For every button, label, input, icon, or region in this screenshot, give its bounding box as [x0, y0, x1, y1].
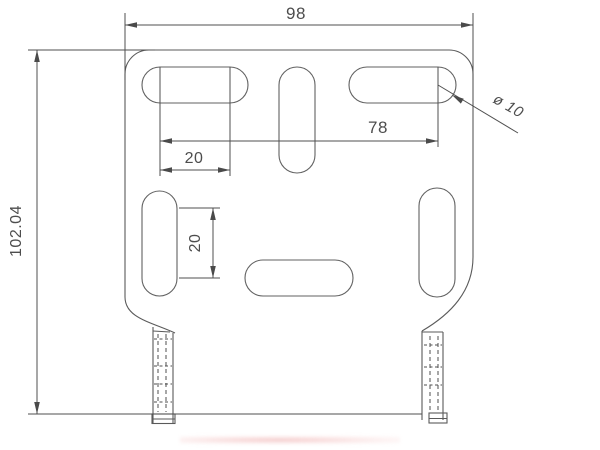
- dim-sideslot-label: 20: [187, 234, 204, 253]
- dim-topslot-arrow-right: [218, 167, 230, 173]
- leg-right: [422, 331, 447, 423]
- leg-left: [152, 327, 175, 424]
- dim-height-arrow-bottom: [34, 402, 40, 414]
- plate-outline: [125, 50, 473, 333]
- dim-sideslot-arrow-top: [210, 208, 216, 220]
- dim-overall-height: 102.04: [8, 50, 422, 414]
- slot-top-right: [349, 67, 456, 103]
- slot-top-left: [142, 67, 248, 103]
- dim-top-slot-spacing: 20: [160, 67, 230, 176]
- dim-span-arrow-left: [160, 138, 172, 144]
- technical-drawing: 98 102.04 78 20: [0, 0, 600, 450]
- render-artifact-pink: [180, 436, 400, 444]
- dim-span-arrow-right: [426, 138, 438, 144]
- dim-side-slot-spacing: 20: [179, 208, 220, 278]
- slot-mid-right: [419, 188, 455, 297]
- dim-width-label: 98: [286, 4, 306, 23]
- slot-bottom-center: [245, 260, 353, 296]
- dim-span-label: 78: [368, 118, 388, 137]
- dim-topslot-arrow-left: [160, 167, 172, 173]
- plate-bottom-left-curve: [125, 297, 175, 333]
- dim-height-arrow-top: [34, 50, 40, 62]
- dim-width-arrow-right: [461, 22, 473, 28]
- leg-left-top-edge: [153, 331, 170, 332]
- dim-height-label: 102.04: [8, 205, 25, 257]
- drawing-canvas: 98 102.04 78 20: [0, 0, 600, 450]
- dim-width-arrow-left: [125, 22, 137, 28]
- slots: [142, 67, 456, 297]
- leader-hole-diameter: ø 10: [438, 85, 526, 133]
- hole-diameter-label: ø 10: [490, 91, 526, 122]
- dim-overall-width: 98: [125, 4, 473, 80]
- dim-sideslot-arrow-bottom: [210, 266, 216, 278]
- slot-mid-left: [142, 191, 177, 296]
- dim-topslot-label: 20: [185, 150, 204, 167]
- slot-top-center: [279, 67, 315, 173]
